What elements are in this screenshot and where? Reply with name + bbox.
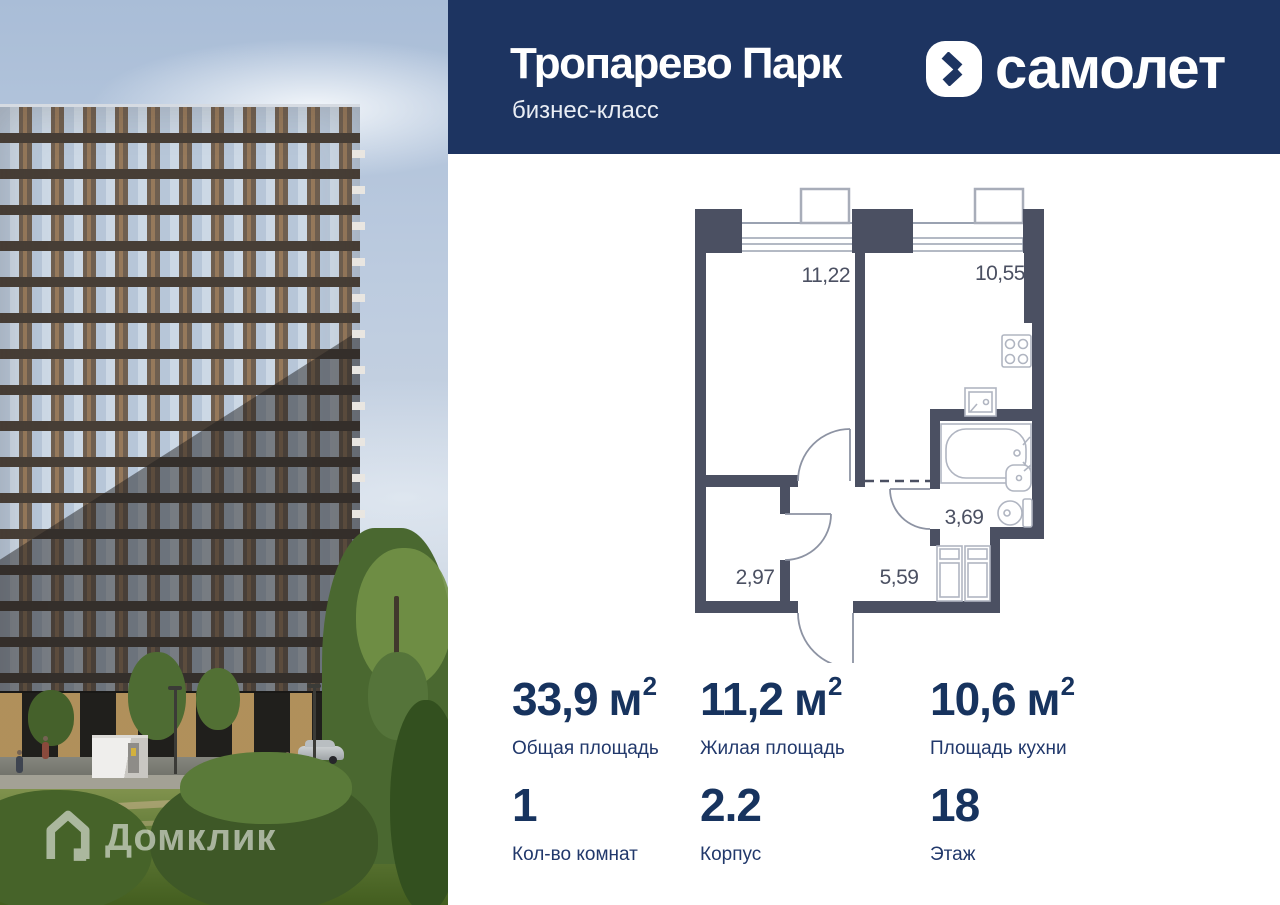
kiosk — [92, 735, 148, 778]
stat-value: 2.2 — [700, 782, 761, 828]
stat-value: 33,9м2 — [512, 676, 659, 722]
person — [16, 756, 23, 773]
room-area-hallway: 5,59 — [880, 566, 919, 589]
lamp-post — [313, 684, 316, 762]
stat-floor-number: 18 Этаж — [930, 782, 979, 864]
stove-icon — [1002, 335, 1031, 367]
stat-value: 10,6м2 — [930, 676, 1074, 722]
stat-value: 18 — [930, 782, 979, 828]
listing-card: Домклик Тропарево Парк бизнес-класс само… — [0, 0, 1280, 905]
stat-building-number: 2.2 Корпус — [700, 782, 761, 864]
washer-icon — [965, 388, 996, 416]
sink-icon — [1006, 465, 1031, 491]
domclick-watermark: Домклик — [46, 810, 276, 867]
tree — [196, 668, 240, 730]
stat-label: Кол-во комнат — [512, 845, 638, 864]
balconies-edge — [352, 150, 365, 580]
stat-total-area: 33,9м2 Общая площадь — [512, 676, 659, 758]
project-class: бизнес-класс — [512, 99, 659, 123]
stat-value: 11,2м2 — [700, 676, 845, 722]
toilet-icon — [998, 499, 1032, 527]
stat-rooms-count: 1 Кол-во комнат — [512, 782, 638, 864]
stat-label: Этаж — [930, 845, 979, 864]
stat-label: Корпус — [700, 845, 761, 864]
project-title: Тропарево Парк — [510, 42, 841, 86]
samolet-logo-icon — [926, 41, 982, 97]
room-area-kitchen: 10,55 — [975, 262, 1025, 285]
samolet-logo: самолет — [926, 41, 1225, 97]
stat-label: Общая площадь — [512, 739, 659, 758]
lamp-post — [174, 686, 177, 774]
tree — [28, 690, 74, 746]
person — [42, 742, 49, 759]
stat-living-area: 11,2м2 Жилая площадь — [700, 676, 845, 758]
room-area-bathroom: 3,69 — [945, 506, 984, 529]
samolet-logo-text: самолет — [995, 41, 1225, 97]
tree — [128, 652, 186, 740]
room-area-living: 11,22 — [802, 264, 851, 287]
room-area-wardrobe: 2,97 — [736, 566, 775, 589]
stat-label: Площадь кухни — [930, 739, 1074, 758]
floorplan: 11,22 10,55 2,97 5,59 3,69 — [693, 183, 1055, 663]
info-panel: Тропарево Парк бизнес-класс самолет — [448, 0, 1280, 905]
domclick-house-icon — [46, 810, 90, 867]
stat-label: Жилая площадь — [700, 739, 845, 758]
stat-value: 1 — [512, 782, 638, 828]
cabinets-icon — [937, 546, 990, 601]
apartment-tower — [0, 104, 360, 763]
kiosk-sign — [131, 748, 136, 756]
bush — [390, 700, 448, 905]
header: Тропарево Парк бизнес-класс самолет — [448, 0, 1280, 154]
stat-kitchen-area: 10,6м2 Площадь кухни — [930, 676, 1074, 758]
building-photo: Домклик — [0, 0, 448, 905]
watermark-text: Домклик — [105, 817, 276, 860]
